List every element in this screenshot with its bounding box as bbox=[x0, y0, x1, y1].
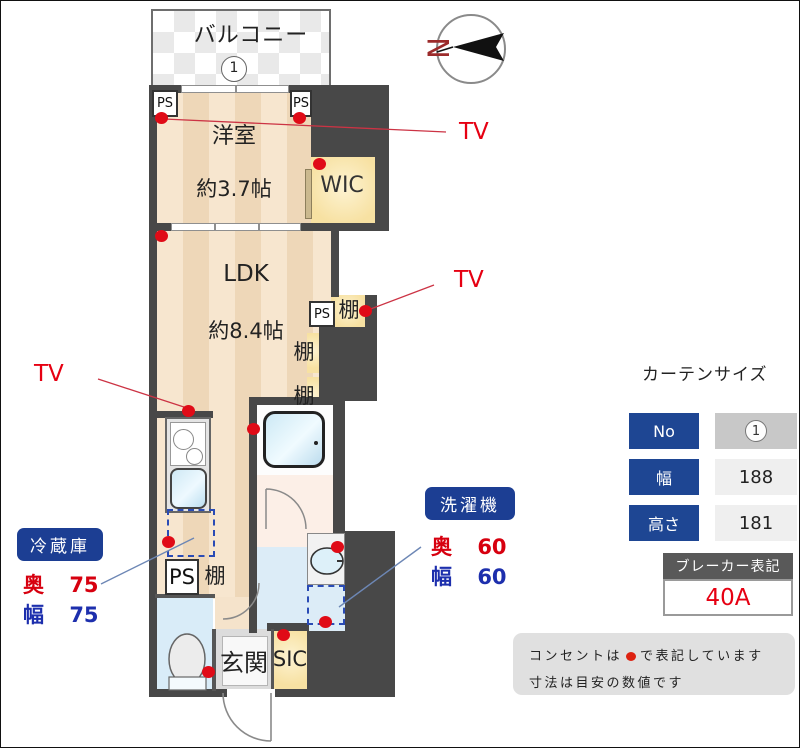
western-room-floor bbox=[157, 93, 311, 225]
fridge-title: 冷蔵庫 bbox=[30, 532, 90, 557]
note-line1-before: コンセントは bbox=[529, 649, 622, 664]
note-line1-after: で表記しています bbox=[640, 649, 764, 664]
curtain-row-height-label: 高さ bbox=[629, 505, 699, 541]
outlet-dot bbox=[155, 230, 168, 242]
outlet-dot bbox=[319, 616, 332, 628]
breaker-value-box: 40A bbox=[663, 579, 793, 616]
fridge-depth-row: 奥 75 bbox=[23, 569, 99, 599]
outlet-dot bbox=[277, 629, 290, 641]
sic-label: SIC bbox=[270, 648, 310, 672]
outlet-dot bbox=[155, 112, 168, 124]
outlet-dot bbox=[293, 112, 306, 124]
outlet-dot bbox=[182, 405, 195, 417]
outlet-dot bbox=[313, 158, 326, 170]
wall-bath-right bbox=[333, 397, 345, 533]
washer-depth-value: 60 bbox=[477, 535, 506, 559]
stove-burner-2 bbox=[186, 448, 203, 465]
breaker-header: ブレーカー表記 bbox=[663, 553, 793, 579]
wall-bottomright-2 bbox=[307, 631, 351, 697]
outlet-dot bbox=[202, 666, 215, 678]
tv-leader-2 bbox=[368, 285, 434, 310]
ps-box-4: PS bbox=[165, 559, 199, 595]
shelf-label-3: 棚 bbox=[289, 383, 319, 411]
curtain-row-width-label: 幅 bbox=[629, 459, 699, 495]
curtain-title: カーテンサイズ bbox=[642, 366, 768, 385]
washer-width-value: 60 bbox=[477, 565, 506, 589]
entrance-door-gap bbox=[227, 689, 275, 698]
curtain-row-no-label: No bbox=[629, 413, 699, 449]
compass-north-label: N bbox=[424, 33, 456, 63]
curtain-row-no-value: 1 bbox=[715, 413, 797, 449]
ldk-size: 約8.4帖 bbox=[197, 320, 295, 344]
wic-door-strip bbox=[305, 169, 312, 219]
wall-ldk-right bbox=[331, 231, 339, 297]
breaker-value-text: 40A bbox=[705, 585, 750, 611]
breaker-title-text: ブレーカー表記 bbox=[676, 556, 781, 576]
sliding-door bbox=[171, 223, 301, 231]
ps-label: PS bbox=[314, 307, 330, 322]
washer-badge: 洗濯機 bbox=[425, 487, 515, 520]
stove-burner-1 bbox=[173, 429, 194, 450]
balcony-number: 1 bbox=[230, 61, 239, 76]
wall-block-bottomright bbox=[345, 531, 395, 697]
outlet-dot bbox=[331, 541, 344, 553]
wall-block-topright bbox=[311, 85, 389, 157]
ps-label: PS bbox=[293, 96, 309, 111]
wall-wic-right bbox=[375, 157, 389, 231]
wall-block-mid bbox=[319, 327, 377, 401]
washer-depth-row: 奥 60 bbox=[431, 531, 507, 561]
note-box: コンセントはで表記しています 寸法は目安の数値です bbox=[513, 633, 795, 695]
ps-label: PS bbox=[157, 96, 173, 111]
balcony-window bbox=[181, 85, 289, 93]
curtain-no-text: No bbox=[653, 422, 675, 441]
curtain-height-text: 高さ bbox=[648, 511, 680, 535]
note-line-2: 寸法は目安の数値です bbox=[529, 672, 795, 691]
washer-depth-label: 奥 bbox=[431, 535, 452, 559]
fridge-width-row: 幅 75 bbox=[23, 599, 99, 629]
entrance-label: 玄関 bbox=[216, 649, 272, 677]
curtain-width-value-text: 188 bbox=[739, 467, 773, 488]
curtain-width-text: 幅 bbox=[656, 465, 672, 489]
tv-label-3: TV bbox=[34, 361, 64, 387]
balcony-number-circle: 1 bbox=[221, 56, 247, 82]
outlet-dot bbox=[359, 305, 372, 317]
shelf-label-4: 棚 bbox=[200, 562, 230, 592]
fridge-width-label: 幅 bbox=[23, 603, 44, 627]
floorplan-canvas: バルコニー 1 洋室 約3.7帖 WIC LDK 約8.4帖 玄関 SIC PS… bbox=[0, 0, 800, 748]
bathtub-drain bbox=[314, 441, 318, 445]
tv-label-2: TV bbox=[454, 267, 484, 293]
fridge-space bbox=[167, 509, 215, 557]
balcony-label: バルコニー bbox=[184, 23, 318, 49]
tv-label-1: TV bbox=[459, 119, 489, 145]
wic-label: WIC bbox=[315, 174, 369, 198]
ldk-label: LDK bbox=[215, 262, 277, 288]
fridge-badge: 冷蔵庫 bbox=[17, 528, 103, 561]
door-tick-1 bbox=[214, 224, 216, 230]
kitchen-sink bbox=[170, 468, 207, 509]
curtain-no-value-text: 1 bbox=[752, 424, 760, 439]
washer-width-label: 幅 bbox=[431, 565, 452, 589]
curtain-height-value-text: 181 bbox=[739, 513, 773, 534]
shelf-label-2: 棚 bbox=[289, 339, 319, 367]
fridge-depth-value: 75 bbox=[69, 573, 98, 597]
outlet-dot bbox=[162, 536, 175, 548]
bathtub bbox=[263, 411, 325, 468]
curtain-row-width-value: 188 bbox=[715, 459, 797, 495]
door-tick-2 bbox=[258, 224, 260, 230]
note-line-1: コンセントはで表記しています bbox=[529, 645, 795, 664]
ps-box-3: PS bbox=[309, 301, 335, 327]
washer-title: 洗濯機 bbox=[440, 491, 500, 516]
curtain-row-height-value: 181 bbox=[715, 505, 797, 541]
outlet-legend-dot bbox=[626, 652, 636, 661]
curtain-no-circle: 1 bbox=[745, 420, 767, 442]
western-room-size: 約3.7帖 bbox=[184, 178, 284, 202]
wall-left bbox=[149, 85, 157, 697]
ps-label: PS bbox=[169, 565, 195, 589]
fridge-depth-label: 奥 bbox=[23, 573, 44, 597]
entrance-door bbox=[223, 693, 271, 741]
outlet-dot bbox=[247, 423, 260, 435]
washer-width-row: 幅 60 bbox=[431, 561, 507, 591]
fridge-width-value: 75 bbox=[69, 603, 98, 627]
western-room-label: 洋室 bbox=[194, 124, 274, 150]
window-tick bbox=[235, 86, 237, 92]
